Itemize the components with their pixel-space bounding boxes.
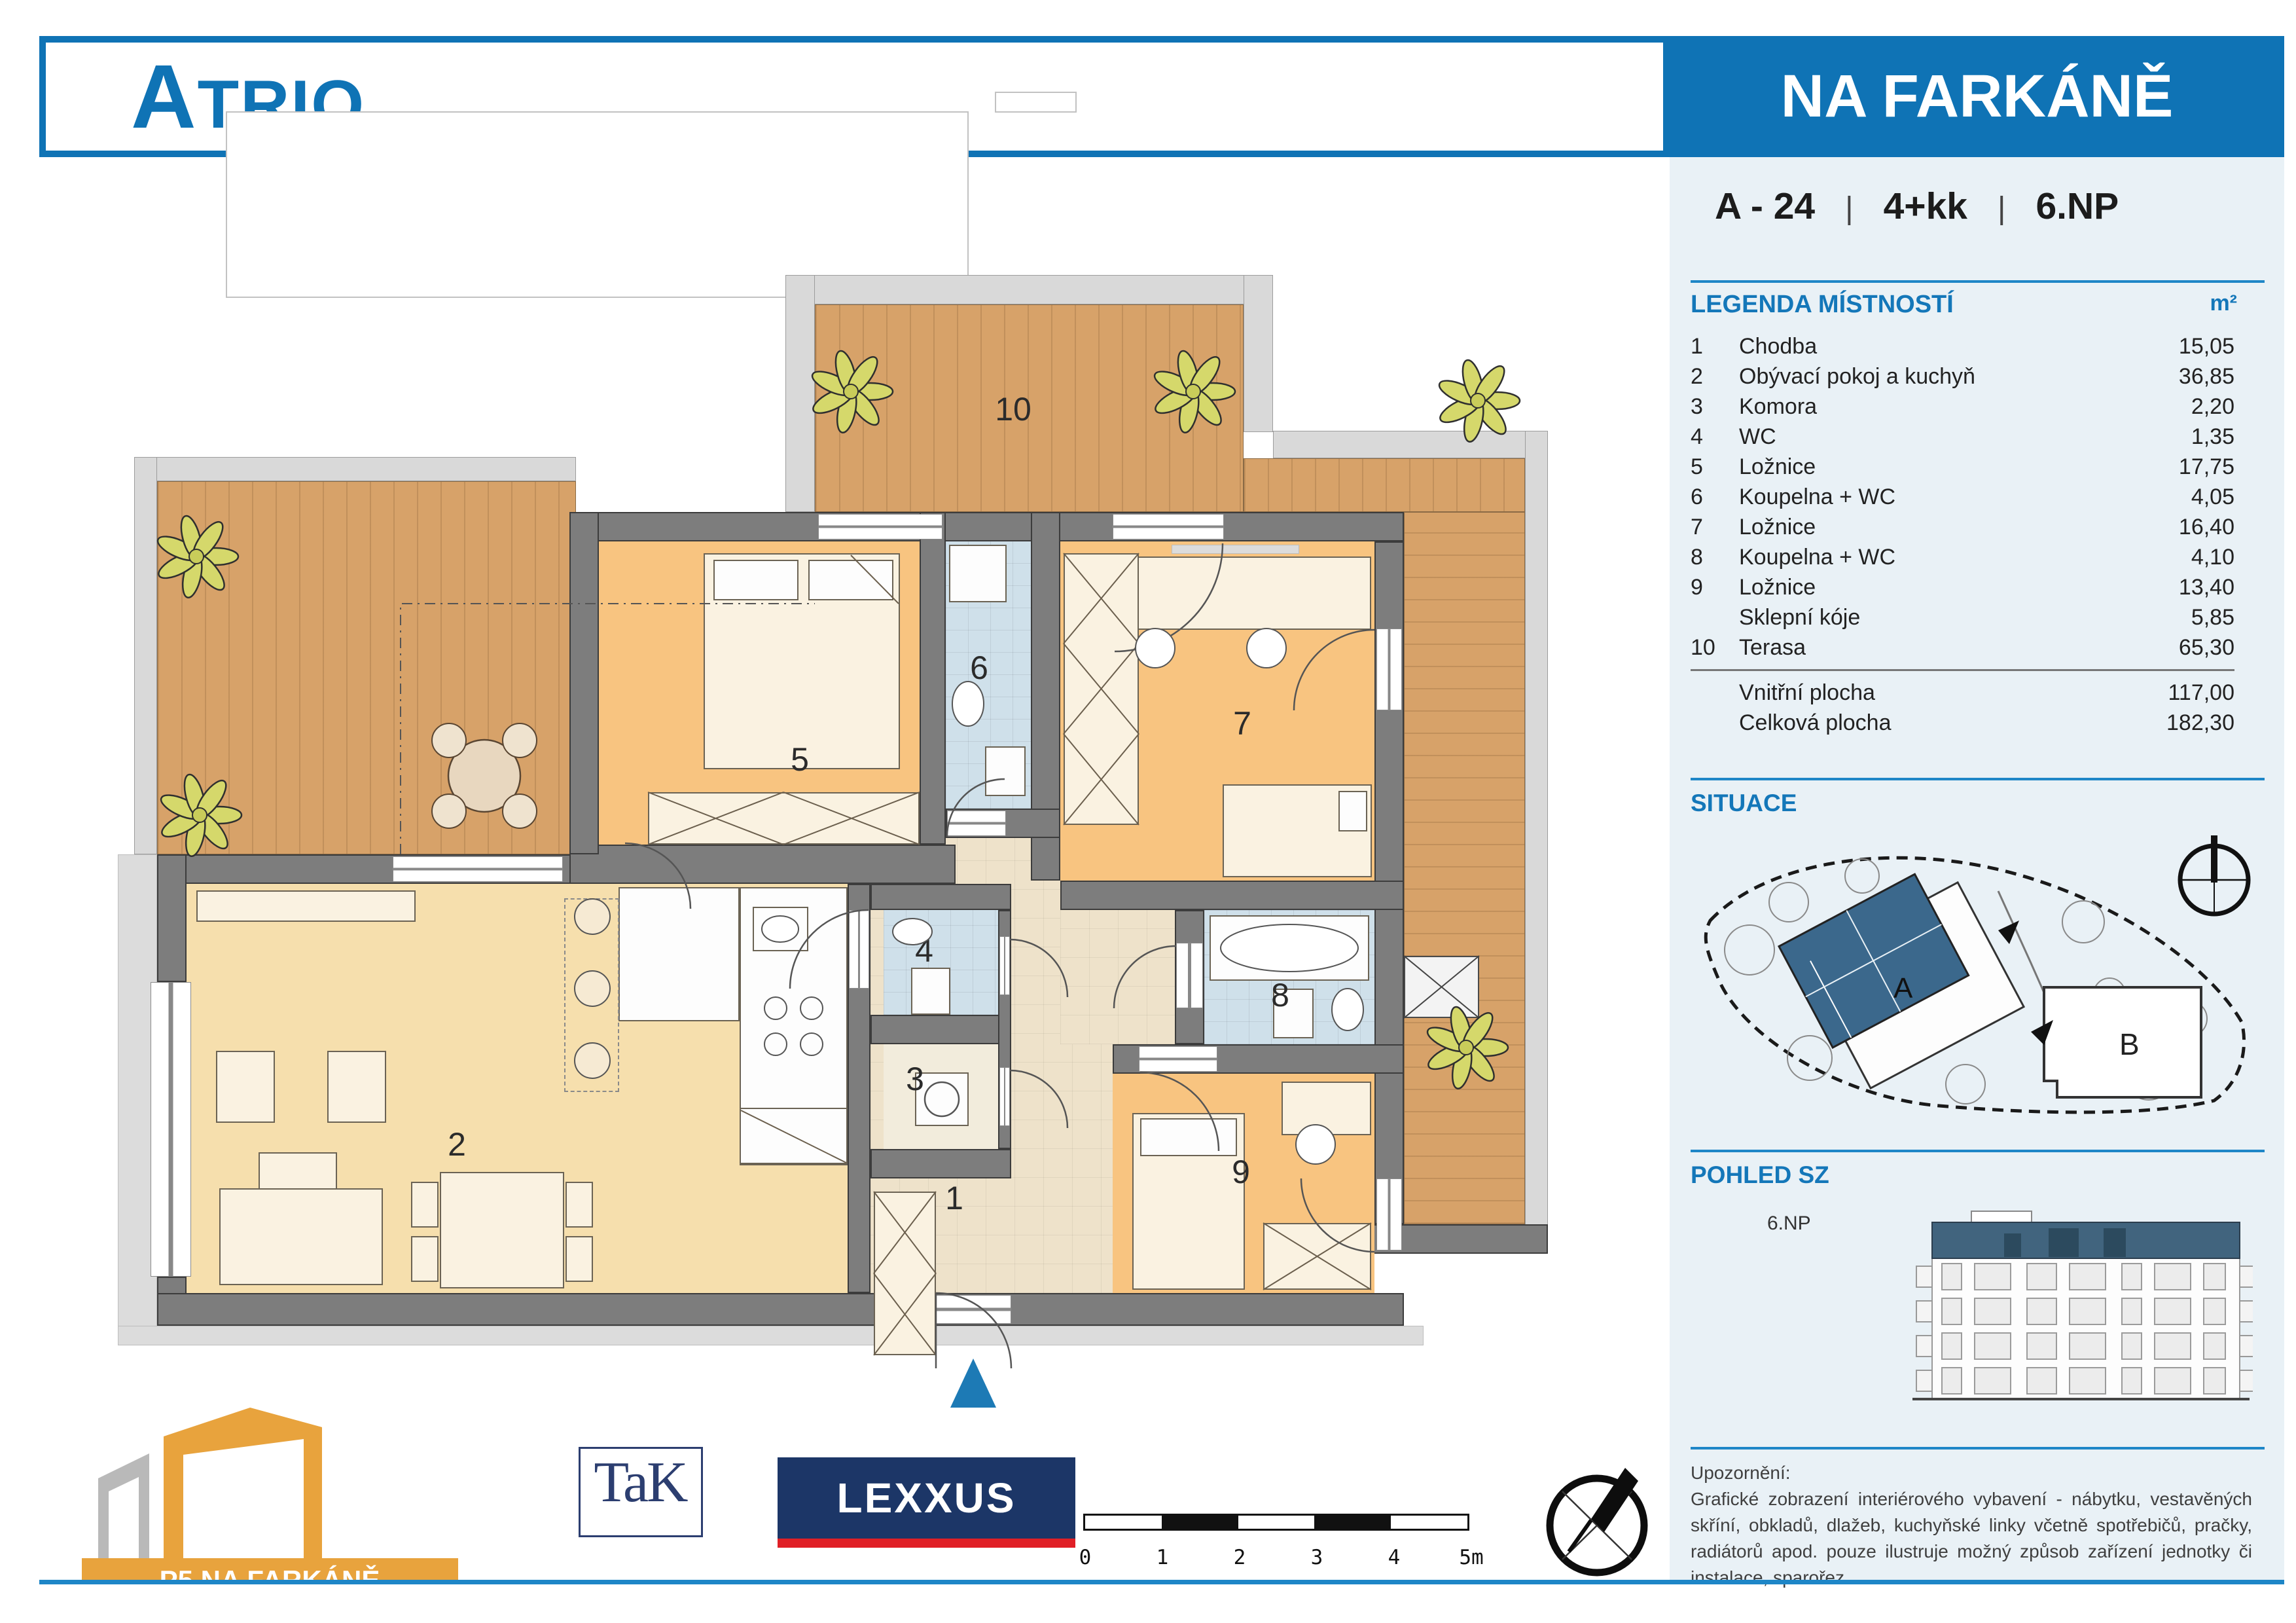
legend-cell: Terasa — [1739, 635, 2130, 661]
p5-logo: P5 NA FARKÁNĚ — [72, 1393, 491, 1583]
divider — [1691, 1447, 2265, 1450]
scale-segment — [1391, 1516, 1467, 1529]
tak-logo: TaK — [575, 1432, 706, 1550]
door — [947, 811, 1006, 836]
legend-row: Sklepní kóje5,85 — [1691, 602, 2244, 632]
pillow — [713, 560, 798, 600]
legend-cell: Koupelna + WC — [1739, 484, 2130, 510]
north-compass-icon — [1535, 1459, 1659, 1586]
legend-table: 1Chodba15,052Obývací pokoj a kuchyň36,85… — [1691, 331, 2244, 738]
scale-tick-label: 3 — [1311, 1546, 1323, 1569]
scale-tick-label: 1 — [1157, 1546, 1169, 1569]
sofa — [219, 1188, 383, 1285]
legend-row: 6Koupelna + WC4,05 — [1691, 482, 2244, 512]
legend-row: 3Komora2,20 — [1691, 392, 2244, 422]
terrace-rail — [1244, 275, 1273, 432]
legend-title: LEGENDA MÍSTNOSTÍ — [1691, 291, 1954, 319]
terrace-rail — [134, 457, 157, 854]
wall — [157, 1293, 1404, 1326]
window — [818, 514, 942, 539]
armchair — [327, 1051, 386, 1123]
wall — [569, 845, 956, 884]
legend-cell: 36,85 — [2130, 364, 2244, 390]
scale-tick-label: 4 — [1388, 1546, 1401, 1569]
legend-cell: 3 — [1691, 394, 1739, 420]
lexxus-logo-text: LEXXUS — [836, 1474, 1016, 1522]
legend-cell: 6 — [1691, 484, 1739, 510]
room-number-label: 4 — [915, 932, 933, 970]
scale-segment — [1238, 1516, 1315, 1529]
legend-row: 4WC1,35 — [1691, 422, 2244, 452]
legend-cell: Koupelna + WC — [1739, 545, 2130, 570]
legend-row: Celková plocha182,30 — [1691, 708, 2244, 738]
legend-row: 1Chodba15,05 — [1691, 331, 2244, 361]
legend-cell: WC — [1739, 424, 2130, 450]
door — [1176, 943, 1203, 1008]
door — [849, 910, 869, 989]
divider — [1691, 1150, 2265, 1152]
wall — [157, 854, 187, 982]
divider — [1691, 280, 2265, 283]
bottom-rule — [39, 1580, 2284, 1584]
legend-cell: Ložnice — [1739, 515, 2130, 540]
highlighted-floor — [1932, 1222, 2240, 1258]
legend-cell: 5 — [1691, 454, 1739, 480]
roof-outline — [226, 111, 969, 298]
tak-logo-text: TaK — [575, 1450, 706, 1516]
building-a-label: A — [1893, 972, 1913, 1004]
site-plan: B A — [1691, 822, 2265, 1140]
chair — [411, 1236, 439, 1282]
legend-row: 10Terasa65,30 — [1691, 632, 2244, 663]
shower — [949, 545, 1007, 602]
wall — [569, 512, 599, 854]
situace-title: SITUACE — [1691, 790, 1797, 817]
legend-unit-label: m² — [2210, 291, 2244, 319]
legend-cell: Sklepní kóje — [1739, 605, 2130, 630]
wardrobe — [874, 1192, 936, 1355]
legend-row: Vnitřní plocha117,00 — [1691, 678, 2244, 708]
wall — [870, 1015, 1011, 1044]
room-number-label: 9 — [1232, 1153, 1250, 1191]
terrace-door — [1376, 1178, 1402, 1250]
sideboard — [196, 890, 416, 922]
terrace-door — [1113, 514, 1224, 539]
room-number-label: 3 — [906, 1060, 924, 1098]
legend-row: 2Obývací pokoj a kuchyň36,85 — [1691, 361, 2244, 392]
legend-cell: 2,20 — [2130, 394, 2244, 420]
pohled-floor-label: 6.NP — [1767, 1213, 1811, 1235]
wardrobe — [648, 792, 920, 845]
legend-cell: 13,40 — [2130, 575, 2244, 600]
legend-cell: 1 — [1691, 334, 1739, 359]
terrace-rail — [785, 275, 815, 512]
sheet: ATRIO NA FARKÁNĚ A - 24 | 4+kk | 6.NP LE… — [0, 0, 2296, 1623]
door — [1139, 1046, 1217, 1072]
building-b-label: B — [2119, 1027, 2140, 1061]
shaft — [1404, 956, 1479, 1018]
divider — [1691, 778, 2265, 780]
unit-layout: 4+kk — [1884, 185, 1967, 228]
armchair — [216, 1051, 275, 1123]
fridge — [740, 1108, 848, 1164]
legend-cell: 8 — [1691, 545, 1739, 570]
legend-cell: Ložnice — [1739, 575, 2130, 600]
roof-step — [995, 92, 1077, 113]
lexxus-logo: LEXXUS — [778, 1457, 1075, 1539]
room-number-label: 2 — [448, 1125, 466, 1163]
chair — [565, 1236, 593, 1282]
edge-bottom — [118, 1326, 1424, 1345]
legend-cell: Ložnice — [1739, 454, 2130, 480]
terrace-rail — [1273, 431, 1548, 458]
pillow — [1140, 1118, 1237, 1156]
terrace-wood — [157, 481, 576, 854]
room-number-label: 10 — [995, 390, 1031, 428]
kitchen-counter — [619, 887, 740, 1021]
legend-cell: Celková plocha — [1739, 710, 2130, 736]
terrace-rail — [134, 457, 576, 481]
door — [999, 936, 1010, 995]
room-number-label: 7 — [1233, 704, 1251, 742]
terrace-wood — [1244, 458, 1525, 512]
terrace-rail — [1525, 431, 1548, 1254]
wardrobe — [1064, 553, 1139, 825]
wall — [569, 512, 1404, 541]
unit-info: A - 24 | 4+kk | 6.NP — [1715, 185, 2119, 228]
legend-row: 8Koupelna + WC4,10 — [1691, 542, 2244, 572]
dining-table — [440, 1172, 564, 1288]
legend-cell: 65,30 — [2130, 635, 2244, 661]
legend-header: LEGENDA MÍSTNOSTÍ m² — [1691, 291, 2244, 319]
scale-segment — [1314, 1516, 1391, 1529]
legend-separator — [1691, 669, 2234, 671]
toilet — [985, 746, 1026, 796]
legend-cell: 16,40 — [2130, 515, 2244, 540]
desk — [1282, 1082, 1371, 1135]
legend-row: 5Ložnice17,75 — [1691, 452, 2244, 482]
terrace-rail — [785, 275, 1273, 304]
legend-cell: Obývací pokoj a kuchyň — [1739, 364, 2130, 390]
legend-cell: Komora — [1739, 394, 2130, 420]
unit-floor: 6.NP — [2036, 185, 2119, 228]
pillow — [808, 560, 893, 600]
bar-counter — [564, 898, 619, 1092]
room-number-label: 6 — [970, 649, 988, 687]
legend-cell: Chodba — [1739, 334, 2130, 359]
legend-cell: 7 — [1691, 515, 1739, 540]
window-door — [393, 856, 563, 882]
entrance-door — [936, 1295, 1011, 1324]
project-title: NA FARKÁNĚ — [1781, 62, 2174, 131]
terrace-door — [1376, 629, 1402, 710]
scale-segment — [1162, 1516, 1238, 1529]
notice-body: Grafické zobrazení interiérového vybaven… — [1691, 1489, 2252, 1588]
wall — [870, 1149, 1011, 1178]
door — [999, 1067, 1010, 1126]
legend-cell: 4,10 — [2130, 545, 2244, 570]
legend-cell: 4 — [1691, 424, 1739, 450]
legend-cell: 17,75 — [2130, 454, 2244, 480]
atrio-logo-initial: A — [131, 46, 198, 147]
project-banner: NA FARKÁNĚ — [1670, 36, 2284, 157]
toilet — [911, 968, 950, 1015]
pillow — [1338, 791, 1367, 831]
notice: Upozornění: Grafické zobrazení interiéro… — [1691, 1460, 2252, 1591]
legend-row: 7Ložnice16,40 — [1691, 512, 2244, 542]
wall — [1060, 881, 1404, 910]
wall — [870, 884, 1011, 910]
legend-cell: 5,85 — [2130, 605, 2244, 630]
scale-bar: 012345m — [1083, 1514, 1469, 1531]
roof-stub — [1971, 1211, 2032, 1223]
kitchen-sink — [753, 907, 808, 951]
separator: | — [1998, 191, 2005, 227]
elevation-drawing — [1873, 1186, 2253, 1434]
legend-cell: Vnitřní plocha — [1739, 680, 2130, 706]
north-indicator-icon — [2180, 835, 2248, 914]
legend-cell: 15,05 — [2130, 334, 2244, 359]
chair — [565, 1182, 593, 1228]
unit-code: A - 24 — [1715, 185, 1815, 228]
terrace-wood — [1404, 512, 1525, 1224]
legend-row: 9Ložnice13,40 — [1691, 572, 2244, 602]
legend-cell: 117,00 — [2130, 680, 2244, 706]
room-number-label: 8 — [1271, 976, 1289, 1014]
scale-segment — [1085, 1516, 1162, 1529]
bathtub — [1210, 915, 1369, 981]
lexxus-logo-underline — [778, 1539, 1075, 1548]
shelf — [1172, 545, 1299, 554]
legend-cell: 2 — [1691, 364, 1739, 390]
legend-cell: 1,35 — [2130, 424, 2244, 450]
wardrobe — [1263, 1223, 1371, 1290]
legend-cell: 4,05 — [2130, 484, 2244, 510]
separator: | — [1845, 191, 1853, 227]
notice-title: Upozornění: — [1691, 1460, 2252, 1486]
scale-tick-label: 5m — [1459, 1546, 1483, 1569]
room-hall — [1060, 910, 1175, 1044]
scale-tick-label: 0 — [1079, 1546, 1092, 1569]
room-number-label: 5 — [791, 740, 809, 778]
room-number-label: 1 — [945, 1179, 963, 1217]
scale-tick-label: 2 — [1234, 1546, 1246, 1569]
entrance-arrow — [950, 1359, 996, 1408]
chair — [411, 1182, 439, 1228]
pohled-title: POHLED SZ — [1691, 1161, 1829, 1189]
wall — [920, 512, 946, 845]
legend-cell: 10 — [1691, 635, 1739, 661]
legend-cell: 182,30 — [2130, 710, 2244, 736]
legend-cell: 9 — [1691, 575, 1739, 600]
window — [151, 982, 191, 1277]
